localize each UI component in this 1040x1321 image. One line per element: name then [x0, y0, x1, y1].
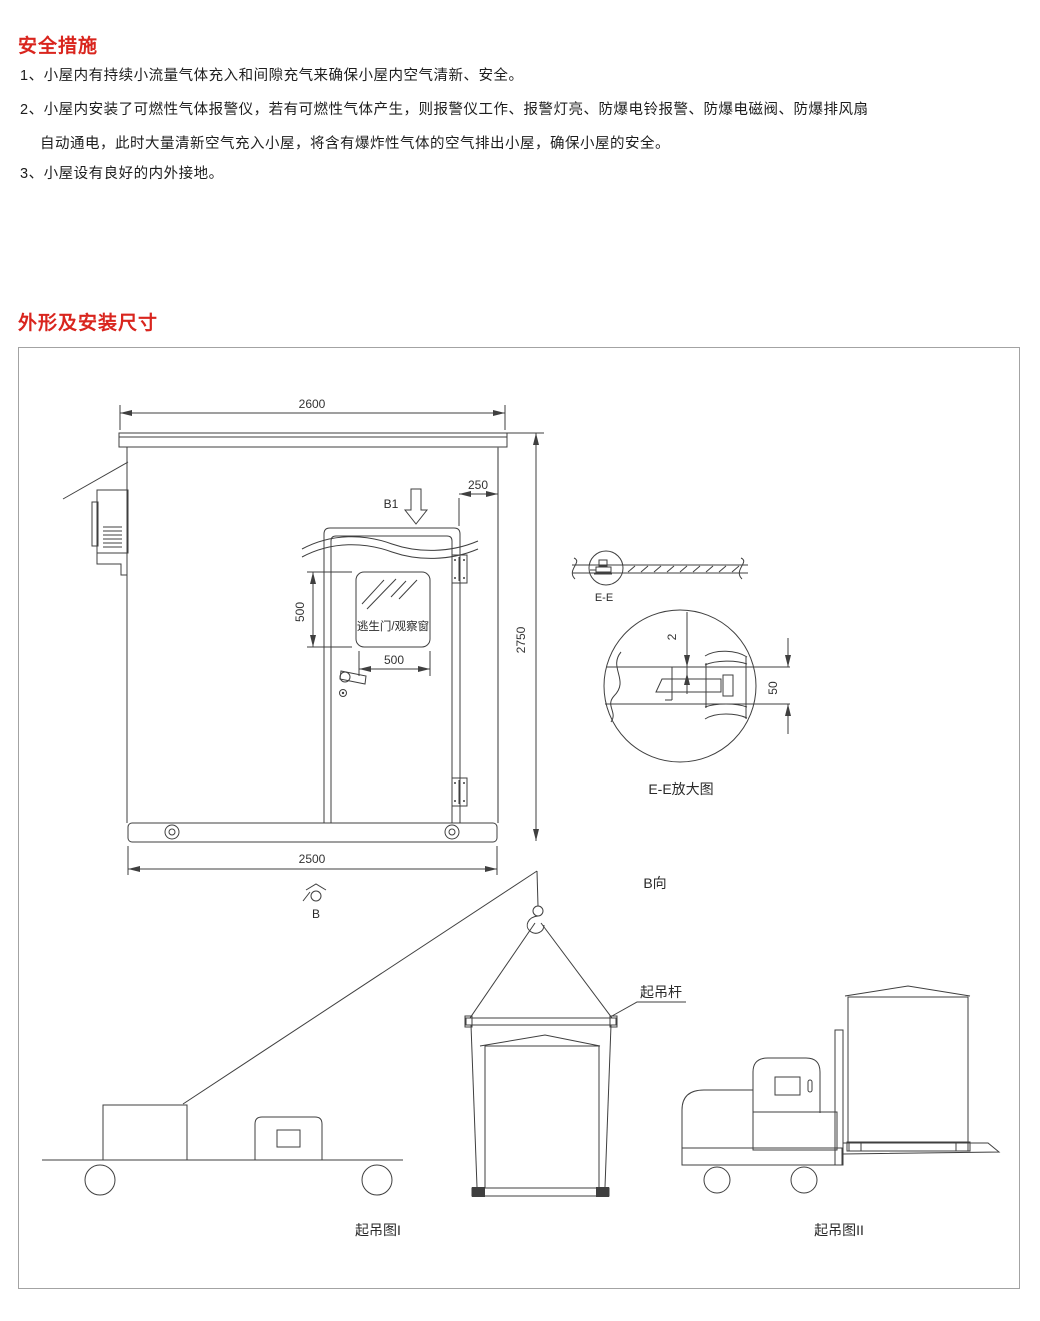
gasket-bar — [656, 679, 721, 692]
beam-leader-line — [612, 1002, 686, 1016]
dim-500-v: 500 — [293, 602, 307, 622]
forklift-chassis — [682, 1148, 842, 1165]
forklift-mast — [835, 1030, 843, 1165]
safety-item-1: 1、小屋内有持续小流量气体充入和间隙充气来确保小屋内空气清新、安全。 — [20, 64, 524, 85]
section-title-safety: 安全措施 — [18, 31, 98, 58]
dim-50: 50 — [766, 681, 780, 695]
technical-drawing: 2600 — [19, 348, 1019, 1288]
wheel — [85, 1165, 115, 1195]
forklift-body — [753, 1112, 837, 1150]
break-symbol-left — [572, 558, 576, 579]
lift-fig2-label: 起吊图II — [814, 1222, 864, 1238]
cable-right — [605, 1025, 611, 1187]
beam-label: 起吊杆 — [640, 984, 682, 1000]
break-symbol-right — [739, 558, 743, 579]
dim-250: 250 — [468, 478, 488, 492]
dim-2600: 2600 — [299, 397, 326, 411]
crane-boom — [183, 871, 537, 1104]
shelter2-body — [848, 997, 968, 1143]
shelter-body — [485, 1046, 599, 1188]
shelter2-roof — [845, 986, 970, 996]
side-vent — [63, 462, 128, 575]
door-hinge-top — [452, 555, 467, 583]
dim-roof-width: 2600 — [120, 397, 505, 430]
view-point-b: B — [303, 884, 326, 921]
b-label: B — [312, 907, 320, 921]
down-arrow-icon — [405, 489, 427, 524]
dim-panel-50: 50 — [766, 638, 788, 734]
detail-callout-circle — [589, 551, 623, 585]
crane-cab-window — [277, 1130, 300, 1147]
safety-item-2: 2、小屋内安装了可燃性气体报警仪，若有可燃性气体产生，则报警仪工作、报警灯亮、防… — [20, 98, 869, 119]
door-hinge-bottom — [452, 778, 467, 806]
wheel — [704, 1167, 730, 1193]
sling-left — [470, 923, 535, 1018]
hook-eye — [533, 906, 543, 916]
lift-fig1-label: 起吊图I — [355, 1222, 401, 1238]
seal-detail-small — [590, 560, 612, 574]
dim-500-h: 500 — [384, 653, 404, 667]
forklift-hood — [682, 1090, 753, 1150]
wheel — [362, 1165, 392, 1195]
section-title-dimensions: 外形及安装尺寸 — [18, 308, 158, 335]
dim-2: 2 — [665, 633, 679, 640]
eye-icon — [311, 891, 321, 901]
dim-window-height: 500 — [293, 572, 352, 647]
technical-drawing-frame: 2600 — [18, 347, 1020, 1289]
break-wave — [611, 652, 621, 722]
safety-item-3: 3、小屋设有良好的内外接地。 — [20, 162, 224, 183]
dim-total-height: 2750 — [507, 433, 544, 841]
ee-label: E-E — [595, 592, 613, 604]
document-page: 安全措施 1、小屋内有持续小流量气体充入和间隙充气来确保小屋内空气清新、安全。 … — [0, 0, 1040, 1321]
base-skid — [128, 823, 497, 842]
shelter-roof — [480, 1035, 600, 1046]
dim-base-width: 2500 — [128, 846, 497, 875]
crane-counterweight — [103, 1105, 187, 1160]
b-direction-label: B向 — [643, 875, 666, 891]
sling-right — [541, 923, 612, 1018]
dim-2750: 2750 — [514, 626, 528, 653]
forklift-cab-window — [775, 1077, 800, 1095]
lifting-beam — [466, 1018, 616, 1025]
door-window-label: 逃生门/观察窗 — [357, 619, 429, 633]
lifting-figure-1: 起吊图I — [42, 871, 537, 1238]
shelter-front-view: 2600 — [63, 397, 544, 921]
hanging-shelter: 起吊杆 — [465, 871, 686, 1197]
ee-detail-label: E-E放大图 — [648, 781, 713, 797]
b1-label: B1 — [384, 497, 399, 511]
ee-enlarged-detail: 2 50 E-E放大图 — [604, 610, 790, 797]
dim-2500: 2500 — [299, 852, 326, 866]
dim-window-width: 500 — [359, 651, 430, 676]
wheel — [791, 1167, 817, 1193]
roof-slab — [119, 433, 507, 447]
forklift-cab — [753, 1058, 820, 1113]
lifting-figure-2: 起吊图II — [682, 986, 999, 1238]
dim-door-offset: 250 — [459, 478, 498, 526]
shelter-base — [472, 1188, 609, 1196]
crane-cab — [255, 1117, 322, 1160]
cable-left — [471, 1025, 477, 1187]
dim-gap-2: 2 — [665, 612, 687, 694]
safety-item-2-cont: 自动通电，此时大量清新空气充入小屋，将含有爆炸性气体的空气排出小屋，确保小屋的安… — [40, 132, 670, 153]
view-arrow-b1: B1 — [384, 489, 427, 524]
section-e-e: E-E — [572, 551, 748, 604]
forklift-fork — [843, 1143, 999, 1154]
hatch-lines — [628, 566, 739, 572]
